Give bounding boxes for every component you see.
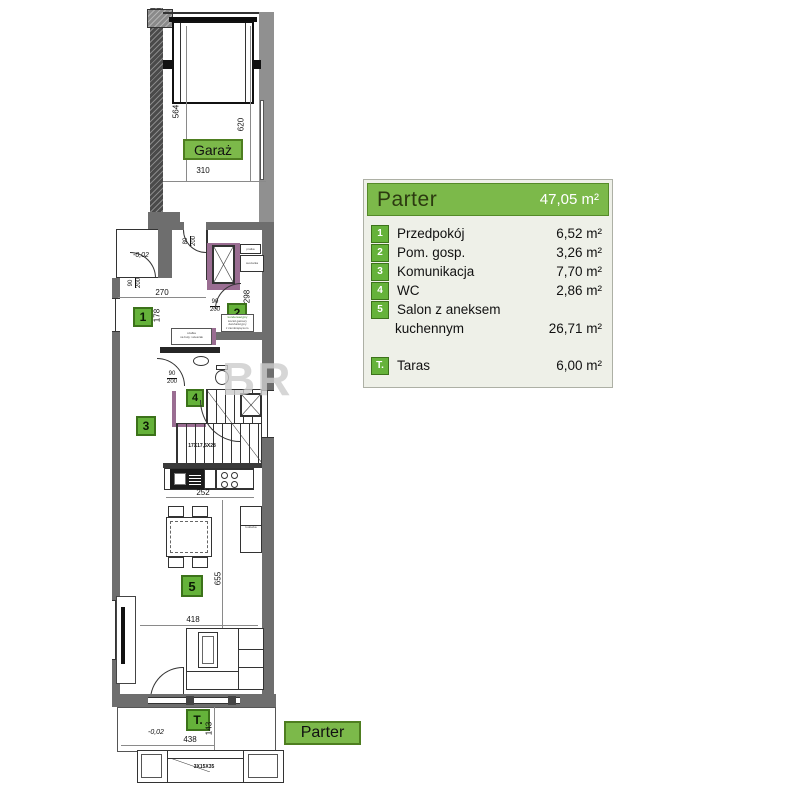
- wall-tab-left: [163, 60, 173, 69]
- kitchen-drainer: [189, 473, 201, 485]
- dim-garage-width: 310: [188, 166, 218, 175]
- shoe-cabinet: szafka na buty i wieszak: [171, 328, 212, 345]
- badge-text: T.: [193, 713, 202, 727]
- floor-label: Parter: [284, 721, 361, 745]
- sofa-chaise-line: [238, 628, 239, 690]
- watermark: BR: [222, 352, 292, 406]
- stairs-spec: 17X17,5X28: [180, 443, 224, 449]
- dim-living-width: 418: [178, 615, 208, 624]
- window-radiator: [116, 596, 136, 684]
- door-height: 200: [167, 378, 177, 386]
- legend-badge-terrace: T.: [371, 357, 389, 375]
- dim-terrace-width: 438: [175, 735, 205, 744]
- washbasin: [193, 356, 209, 366]
- legend-row-1: 1 Przedpokój 6,52 m²: [371, 224, 602, 243]
- legend-total-area: 47,05 m²: [540, 191, 599, 208]
- left-wall-window-1-glass: [115, 299, 116, 331]
- utility-bottom-wall: [214, 332, 262, 340]
- dim-kitchen-width: 252: [188, 488, 218, 497]
- garage-label-text: Garaż: [194, 142, 232, 158]
- steps-divider-left: [167, 750, 168, 783]
- room-name: Przedpokój: [397, 226, 465, 241]
- kitchen-cabinet: [204, 469, 216, 489]
- coffee-table-inner: [202, 636, 214, 664]
- door-height: 200: [135, 278, 143, 288]
- room-badge-1: 1: [133, 307, 153, 327]
- cabinet-label-2: na buty i wieszak: [172, 336, 211, 340]
- legend-rows: 1 Przedpokój 6,52 m² 2 Pom. gosp. 3,26 m…: [364, 219, 612, 375]
- washer-box: pralka: [240, 244, 261, 254]
- dim-line-143: [214, 707, 215, 752]
- legend-header: Parter 47,05 m²: [367, 183, 609, 216]
- legend-row-4: 4 WC 2,86 m²: [371, 281, 602, 300]
- floor-plan: 564 620 310 Garaż 80 200 -0,02 90 200 pr…: [0, 0, 788, 785]
- floor-label-text: Parter: [301, 724, 345, 742]
- legend-row-terrace: T. Taras 6,00 m²: [371, 356, 602, 375]
- dim-line-252: [166, 497, 254, 498]
- dim-line-438: [121, 745, 214, 746]
- washer-label: pralka: [241, 248, 260, 252]
- door-height: 200: [190, 236, 198, 246]
- chair-4: [192, 557, 208, 568]
- garage-right-window-slit: [260, 100, 264, 180]
- room-area: 7,70 m²: [556, 264, 602, 279]
- legend-badge-4: 4: [371, 282, 389, 300]
- glazing-post-2: [228, 696, 236, 705]
- room-name: Taras: [397, 358, 430, 373]
- room-name-line2: kuchennym: [395, 321, 464, 336]
- entrance-level-marker: -0,02: [133, 252, 149, 259]
- dim-line-310: [163, 181, 266, 182]
- entrance-door-dim: 90 200: [128, 274, 142, 292]
- bottom-wall-glazing: [148, 697, 240, 704]
- boiler-box: kondensacyjny kocioł gazowy dwufunkcyjny…: [221, 314, 254, 332]
- chair-2: [192, 506, 208, 517]
- dryer-label: suszarka: [241, 262, 263, 266]
- legend-badge-5: 5: [371, 301, 389, 319]
- room-name: Komunikacja: [397, 264, 474, 279]
- steps-divider-right: [243, 750, 244, 783]
- burner-1: [221, 472, 228, 479]
- dim-garage-depth-left: 564: [172, 97, 181, 127]
- badge-text: 5: [188, 579, 195, 594]
- dining-table-inner: [170, 521, 208, 553]
- dim-terrace-depth: 143: [205, 714, 214, 744]
- dryer-box: suszarka: [240, 255, 264, 272]
- left-wall-window-1: [112, 298, 120, 332]
- legend-row-5-cont: kuchennym 26,71 m²: [371, 319, 602, 338]
- porch-hall-wall: [158, 225, 172, 278]
- terrace-level-marker: -0,02: [148, 729, 164, 736]
- steps-right-inner: [248, 754, 278, 778]
- car-space: [172, 21, 254, 104]
- garage-label: Garaż: [183, 139, 243, 160]
- badge-text: 1: [140, 310, 147, 324]
- room-area: 2,86 m²: [556, 283, 602, 298]
- steps-left-inner: [141, 754, 162, 778]
- garage-left-wall: [150, 8, 163, 214]
- dim-line-270: [118, 297, 206, 298]
- burner-3: [221, 481, 228, 488]
- dim-line-418: [140, 625, 258, 626]
- legend-row-5: 5 Salon z aneksem: [371, 300, 602, 319]
- legend-title: Parter: [377, 188, 437, 212]
- glazing-post-1: [186, 696, 194, 705]
- car-space-line-left: [180, 23, 181, 102]
- car-space-line-right: [245, 23, 246, 102]
- hall-wc-wall: [160, 347, 220, 353]
- garage-top-wall: [163, 12, 273, 14]
- burner-4: [231, 481, 238, 488]
- dim-hall-width: 270: [147, 288, 177, 297]
- wc-door-dim: 90 200: [163, 371, 181, 385]
- dim-hall-depth: 178: [153, 301, 162, 331]
- legend-row-3: 3 Komunikacja 7,70 m²: [371, 262, 602, 281]
- room-badge-5: 5: [181, 575, 203, 597]
- room-name: Salon z aneksem: [397, 302, 501, 317]
- stairs-rail-vertical: [172, 391, 176, 427]
- dim-garage-depth-right: 620: [237, 110, 246, 140]
- room-area: 6,52 m²: [556, 226, 602, 241]
- outdoor-steps-spec: 3X15X35: [182, 764, 226, 770]
- dim-living-depth: 655: [214, 564, 223, 594]
- room-badge-3: 3: [136, 416, 156, 436]
- burner-2: [231, 472, 238, 479]
- legend-badge-1: 1: [371, 225, 389, 243]
- ventilation-shaft: [212, 245, 235, 284]
- chair-1: [168, 506, 184, 517]
- chair-3: [168, 557, 184, 568]
- room-area: 26,71 m²: [549, 321, 602, 336]
- room-area: 6,00 m²: [556, 358, 602, 373]
- kitchen-sink: [174, 473, 186, 485]
- room-name: Pom. gosp.: [397, 245, 465, 260]
- legend-row-2: 2 Pom. gosp. 3,26 m²: [371, 243, 602, 262]
- fridge-unit: lodówka: [240, 506, 262, 553]
- radiator-bar: [121, 607, 125, 664]
- sofa-cushion-line-2: [238, 667, 264, 668]
- boiler-label-4: z zamkniętą kom.: [222, 327, 253, 331]
- room-area: 3,26 m²: [556, 245, 602, 260]
- right-outer-wall: [262, 225, 274, 695]
- legend-badge-2: 2: [371, 244, 389, 262]
- room-name: WC: [397, 283, 420, 298]
- hall-top-door-dim: 80 200: [183, 232, 197, 250]
- cabinet-wall-stub: [212, 328, 216, 345]
- legend-panel: Parter 47,05 m² 1 Przedpokój 6,52 m² 2 P…: [363, 179, 613, 388]
- sofa-seat-line: [186, 671, 238, 672]
- badge-text: 4: [192, 392, 198, 404]
- badge-text: 3: [143, 419, 150, 433]
- sofa-cushion-line-1: [238, 649, 264, 650]
- fridge-label: lodówka: [241, 526, 261, 530]
- legend-badge-3: 3: [371, 263, 389, 281]
- wall-tab-right: [252, 60, 261, 69]
- dim-line-620: [250, 26, 251, 182]
